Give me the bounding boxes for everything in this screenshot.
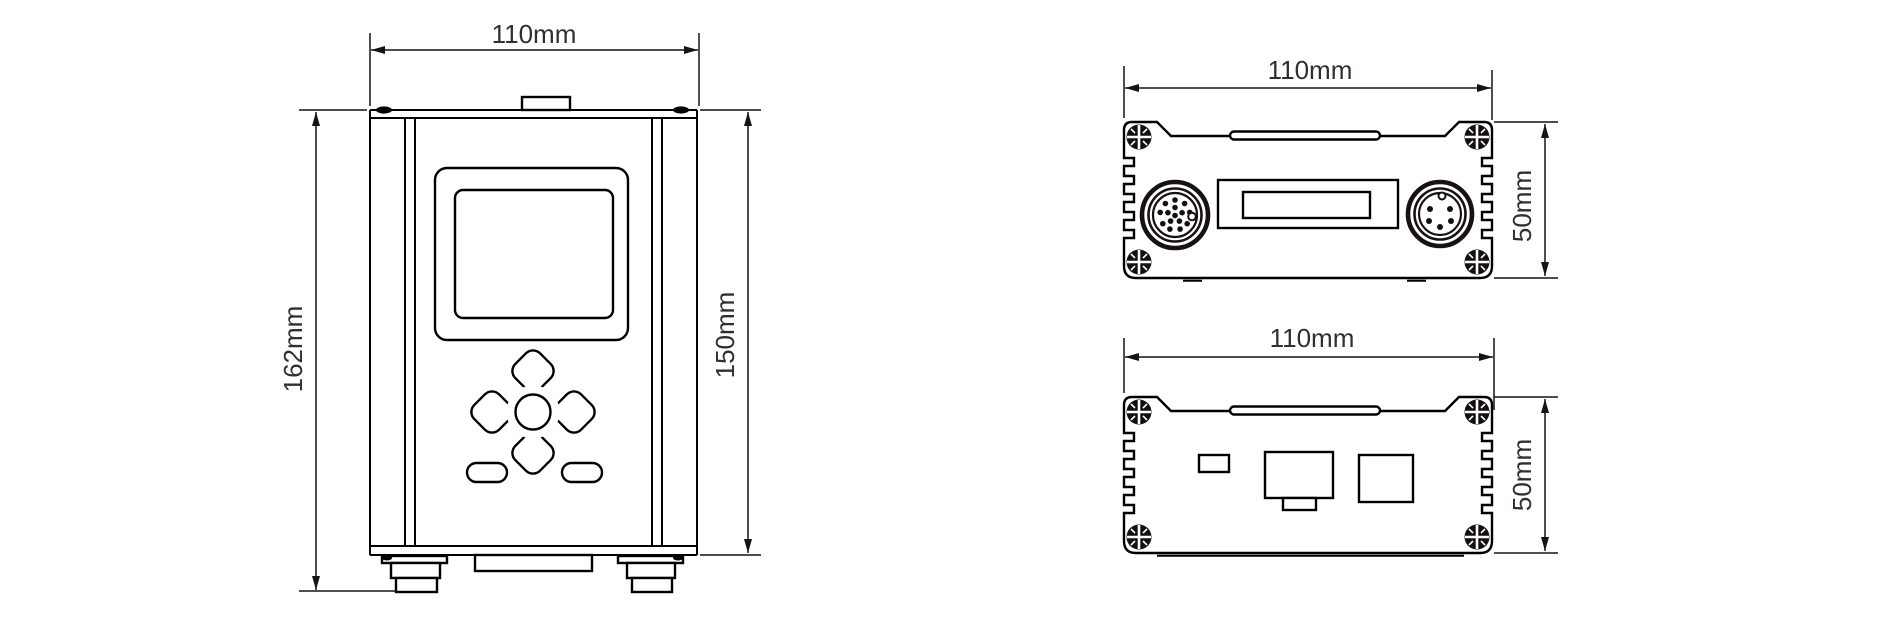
screw-icon <box>1465 525 1490 550</box>
top-tab <box>522 97 570 110</box>
top-panel-view <box>1124 122 1492 281</box>
bottom-width-dimension: 110mm <box>1124 323 1494 410</box>
display-window <box>1243 192 1370 218</box>
bottom-vent-slot <box>1230 407 1380 415</box>
front-total-height-dimension: 162mm <box>278 110 397 591</box>
screw-icon <box>1127 250 1152 275</box>
top-depth-label: 50mm <box>1507 170 1537 242</box>
top-depth-dimension: 50mm <box>1494 122 1558 278</box>
function-button-right <box>562 463 602 482</box>
engineering-drawing: 110mm 162mm 150mm <box>0 0 1896 627</box>
switch-slot <box>1199 455 1229 472</box>
function-button-left <box>467 463 507 482</box>
top-vent-slot <box>1230 132 1380 140</box>
connector-key-notch <box>1188 213 1196 221</box>
dpad-center-button <box>516 395 551 430</box>
d-pad <box>467 346 598 477</box>
front-width-dimension: 110mm <box>370 19 699 106</box>
connector-key-notch <box>1439 193 1446 200</box>
screw-icon <box>1127 400 1152 425</box>
top-width-label: 110mm <box>1268 55 1353 85</box>
bottom-tab <box>475 555 592 571</box>
front-view <box>370 97 697 592</box>
front-total-height-label: 162mm <box>278 306 308 393</box>
screw-icon <box>1465 400 1490 425</box>
screw-icon <box>1465 250 1490 275</box>
bottom-connector-right <box>618 556 683 593</box>
top-width-dimension: 110mm <box>1124 55 1492 120</box>
screw-icon <box>1465 125 1490 150</box>
bottom-panel-view <box>1124 397 1492 556</box>
rivet-dot-left <box>376 106 392 113</box>
bottom-connector-left <box>382 556 447 593</box>
screw-icon <box>1127 525 1152 550</box>
rivet-dot-right <box>673 106 689 113</box>
screw-icon <box>1127 125 1152 150</box>
technical-drawing-canvas: 110mm 162mm 150mm <box>0 0 1896 627</box>
screen <box>455 190 613 318</box>
square-port <box>1359 455 1413 502</box>
front-width-label: 110mm <box>492 19 577 49</box>
multi-pin-connector <box>1142 182 1208 248</box>
bottom-depth-dimension: 50mm <box>1494 397 1558 553</box>
front-body-height-dimension: 150mm <box>700 110 761 555</box>
power-connector-5pin <box>1408 182 1472 246</box>
front-body-height-label: 150mm <box>710 292 740 379</box>
bottom-width-label: 110mm <box>1270 323 1355 353</box>
bottom-depth-label: 50mm <box>1507 439 1537 511</box>
